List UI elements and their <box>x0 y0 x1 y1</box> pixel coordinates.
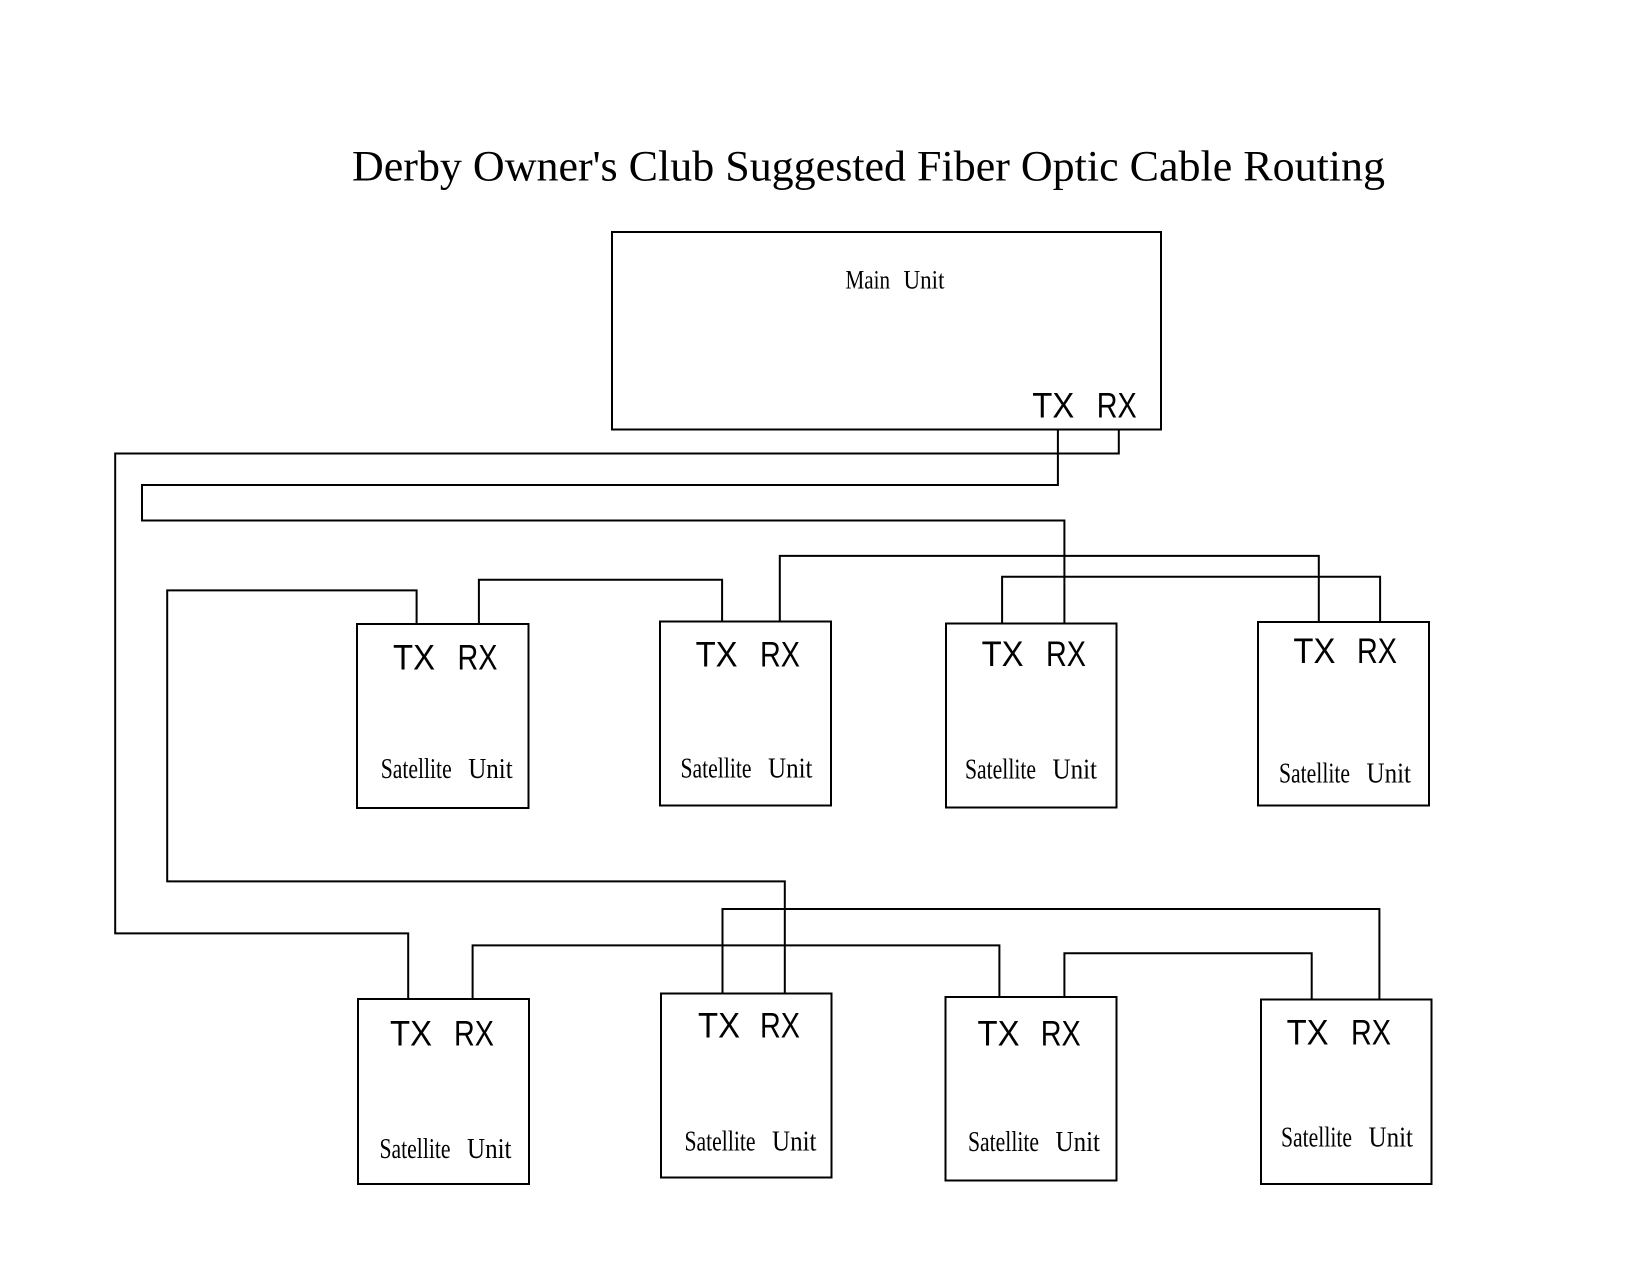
svg-text:RX: RX <box>1097 386 1137 425</box>
svg-text:RX: RX <box>760 1007 800 1046</box>
svg-text:Satellite: Satellite <box>381 754 452 785</box>
svg-text:RX: RX <box>454 1015 494 1054</box>
svg-text:Satellite: Satellite <box>681 754 752 785</box>
svg-text:RX: RX <box>1351 1014 1391 1053</box>
svg-text:RX: RX <box>760 636 800 675</box>
svg-text:TX: TX <box>390 1015 432 1054</box>
svg-text:Unit: Unit <box>1367 759 1412 790</box>
svg-text:Satellite: Satellite <box>965 755 1036 786</box>
svg-text:TX: TX <box>982 635 1024 674</box>
svg-text:TX: TX <box>696 636 738 675</box>
svg-text:Derby Owner's Club Suggested F: Derby Owner's Club Suggested Fiber Optic… <box>352 144 1385 191</box>
svg-text:TX: TX <box>1032 386 1074 425</box>
svg-text:Unit: Unit <box>467 1134 512 1165</box>
svg-text:RX: RX <box>1041 1015 1081 1054</box>
svg-text:Satellite: Satellite <box>968 1127 1039 1158</box>
svg-text:Satellite: Satellite <box>685 1127 756 1158</box>
svg-text:Main: Main <box>846 266 891 295</box>
svg-text:TX: TX <box>1293 632 1335 671</box>
svg-text:Unit: Unit <box>1053 755 1098 786</box>
svg-text:RX: RX <box>458 639 498 678</box>
svg-text:TX: TX <box>1287 1014 1329 1053</box>
svg-text:Unit: Unit <box>904 266 946 295</box>
svg-text:Unit: Unit <box>768 754 813 785</box>
svg-text:RX: RX <box>1046 635 1086 674</box>
svg-text:Unit: Unit <box>1056 1127 1101 1158</box>
svg-text:TX: TX <box>698 1007 740 1046</box>
svg-text:TX: TX <box>393 639 435 678</box>
svg-text:Satellite: Satellite <box>1279 759 1350 790</box>
svg-text:TX: TX <box>978 1015 1020 1054</box>
svg-text:Satellite: Satellite <box>1281 1123 1352 1154</box>
svg-text:Satellite: Satellite <box>380 1134 451 1165</box>
svg-text:Unit: Unit <box>772 1127 817 1158</box>
svg-text:RX: RX <box>1357 632 1397 671</box>
svg-text:Unit: Unit <box>468 754 513 785</box>
svg-text:Unit: Unit <box>1369 1123 1414 1154</box>
